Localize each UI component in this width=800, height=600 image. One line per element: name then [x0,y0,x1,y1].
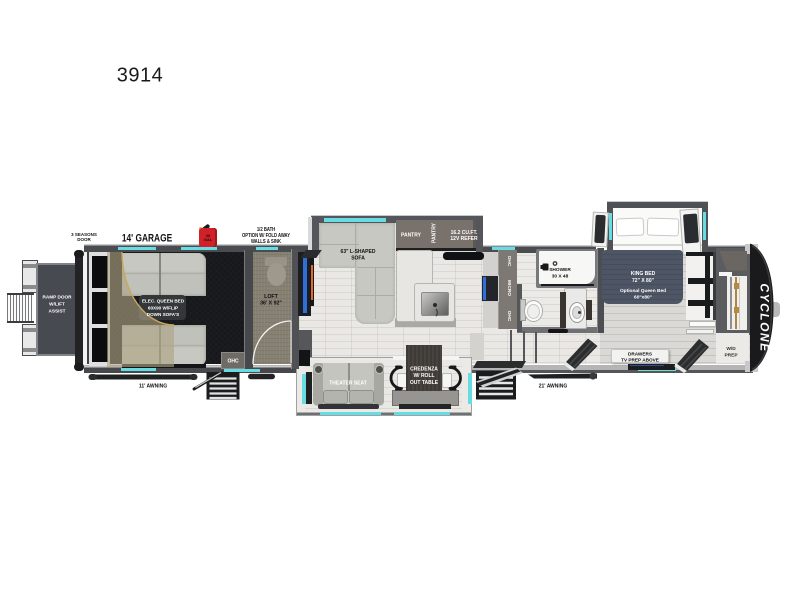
svg-text:CYCLONE: CYCLONE [758,283,772,352]
